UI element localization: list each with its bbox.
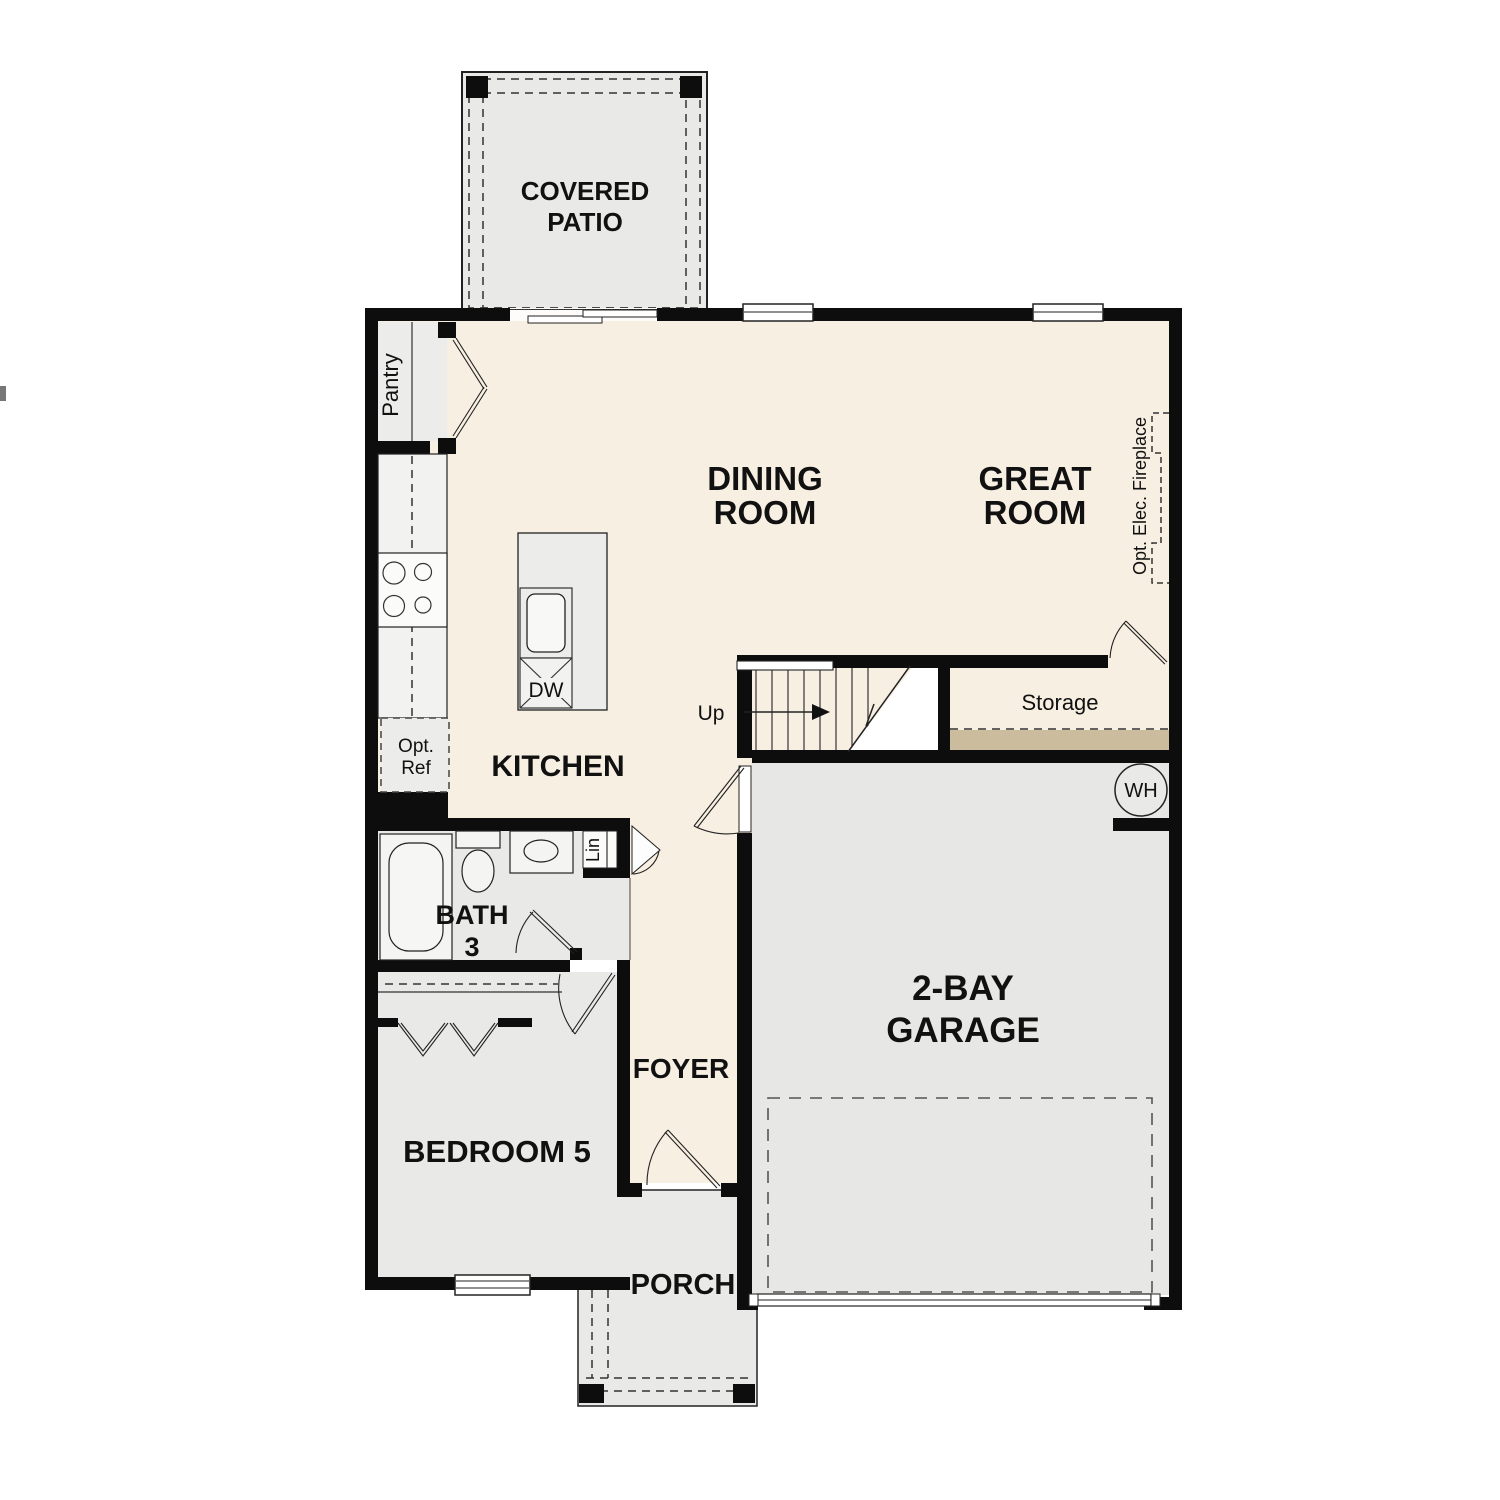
- porch-post-left: [579, 1384, 604, 1403]
- garage-door: [749, 1294, 1160, 1306]
- floor-plan-page: COVERED PATIO PORCH: [0, 0, 1500, 1500]
- patio-post-right: [680, 76, 702, 98]
- great-room-label-line1: GREAT: [978, 460, 1091, 497]
- window: [1033, 304, 1103, 321]
- right-wall: [1169, 308, 1182, 1310]
- floor-plan: COVERED PATIO PORCH: [0, 0, 1500, 1500]
- dining-room-label-line1: DINING: [707, 460, 823, 497]
- porch-label: PORCH: [631, 1269, 736, 1301]
- water-heater: WH: [1115, 764, 1167, 816]
- opt-ref-label-line2: Ref: [401, 758, 431, 779]
- fireplace-label: Opt. Elec. Fireplace: [1130, 417, 1150, 575]
- up-label: Up: [698, 702, 725, 725]
- storage-label: Storage: [1021, 690, 1098, 715]
- dishwasher: DW: [520, 658, 572, 708]
- covered-patio: COVERED PATIO: [462, 72, 707, 310]
- island-sink: [527, 594, 565, 652]
- patio-post-left: [466, 76, 488, 98]
- kitchen-label: KITCHEN: [491, 750, 624, 783]
- edge-fragment: [0, 386, 6, 401]
- covered-patio-label-line2: PATIO: [547, 207, 623, 237]
- covered-patio-label-line1: COVERED: [521, 176, 650, 206]
- lin-label: Lin: [583, 838, 603, 862]
- stair-railing: [737, 661, 833, 670]
- great-room-label-line2: ROOM: [984, 494, 1087, 531]
- garage-label-line1: 2-BAY: [912, 969, 1014, 1008]
- porch-post-right: [733, 1384, 755, 1403]
- bedroom5-label: BEDROOM 5: [403, 1134, 591, 1169]
- opt-ref-label-line1: Opt.: [398, 736, 434, 757]
- optional-refrigerator: Opt. Ref: [381, 718, 449, 792]
- wh-label: WH: [1124, 780, 1157, 802]
- bath3-label-line2: 3: [464, 932, 479, 962]
- foyer-label: FOYER: [633, 1053, 729, 1084]
- bath-sink: [510, 831, 573, 873]
- sliding-door-panel: [583, 310, 657, 317]
- storage-strip: [950, 730, 1169, 750]
- bath3-label-line1: BATH: [436, 900, 509, 930]
- dining-room-label-line2: ROOM: [714, 494, 817, 531]
- bathtub: [380, 834, 452, 960]
- garage-label-line2: GARAGE: [886, 1011, 1040, 1050]
- pantry-label: Pantry: [378, 353, 403, 417]
- dw-label: DW: [529, 679, 564, 702]
- foyer-floor: [630, 755, 737, 1183]
- kitchen-island: DW: [518, 533, 607, 710]
- window: [743, 304, 813, 321]
- bedroom-window: [455, 1275, 530, 1295]
- cooktop: [378, 553, 447, 627]
